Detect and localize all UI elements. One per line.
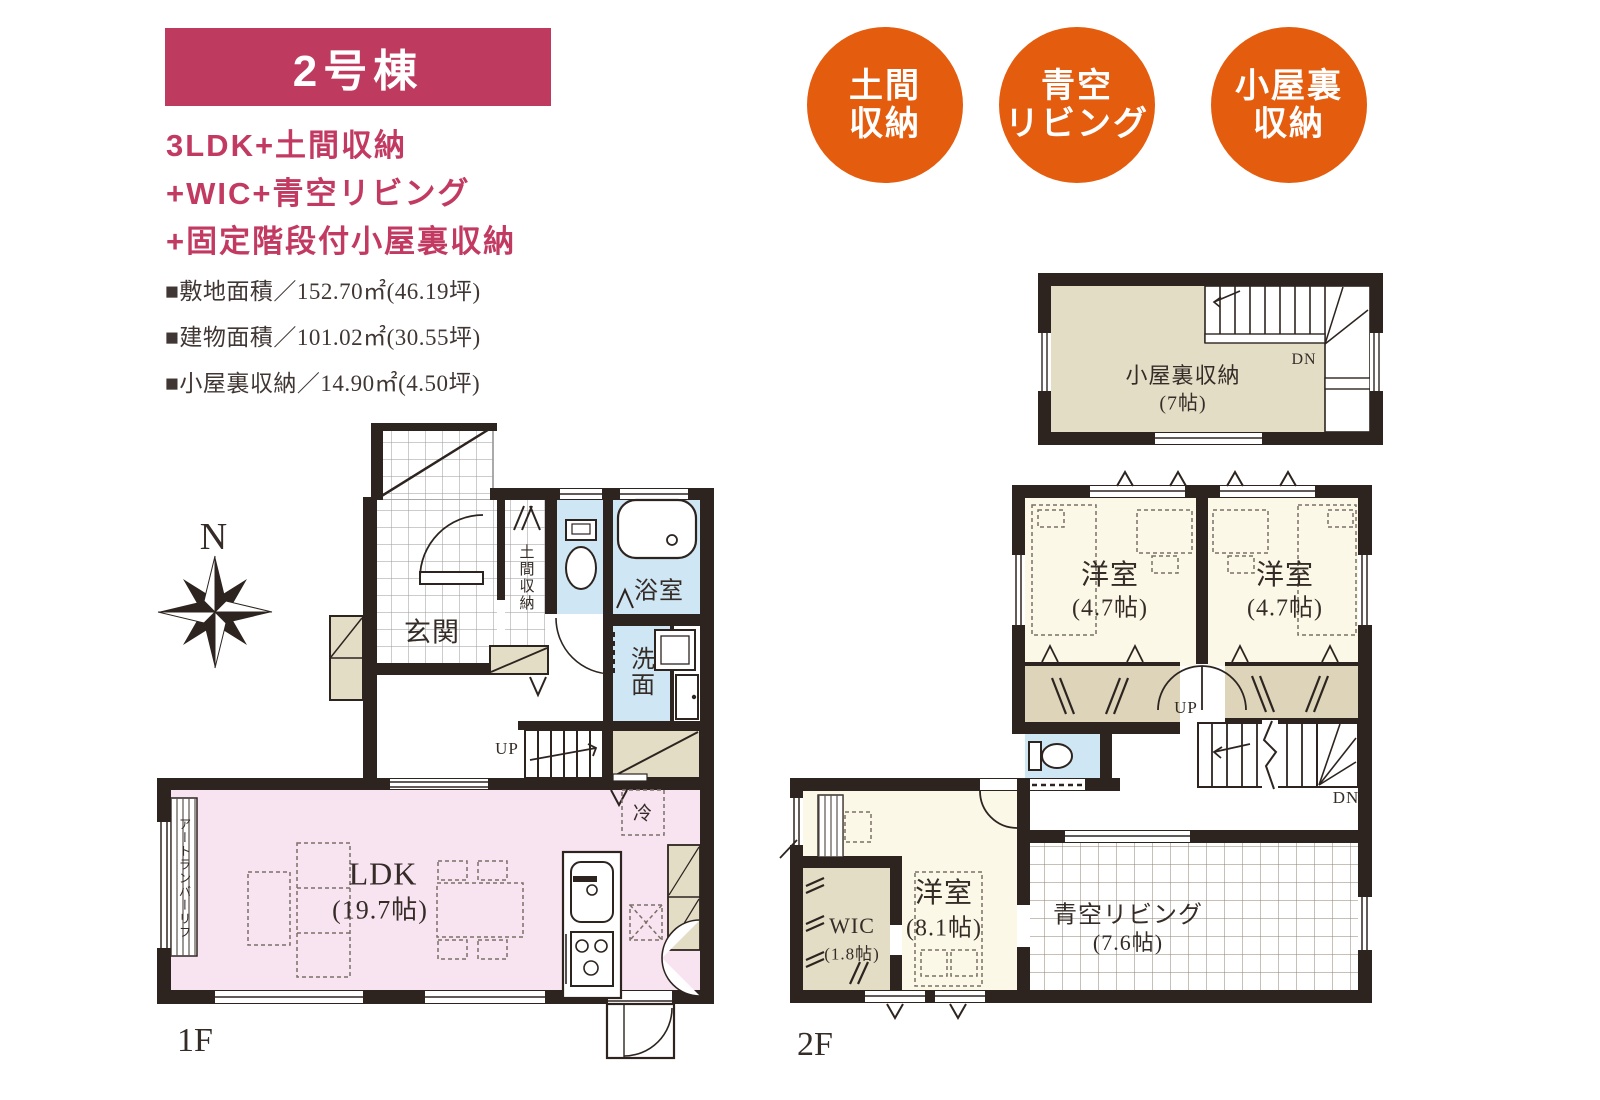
- stairs-2f: [1198, 720, 1358, 790]
- badge-text: 収納: [849, 105, 921, 143]
- exterior-step: [607, 1004, 674, 1058]
- bedroom2-size-label: (4.7帖): [1247, 588, 1323, 623]
- toilet-icon: [566, 520, 596, 589]
- spec-attic-area: ■小屋裏収納／14.90㎡(4.50坪): [165, 364, 480, 398]
- bedroom1-size-label: (4.7帖): [1072, 588, 1148, 623]
- understair-storage: [612, 730, 700, 781]
- compass-rose-icon: [158, 556, 272, 668]
- bedroom3-label: 洋室: [915, 871, 973, 911]
- badge-text: 小屋裏: [1235, 67, 1343, 105]
- floorplan-2f: [770, 460, 1400, 1060]
- wic-size-label: (1.8帖): [824, 940, 880, 965]
- ldk-size-label: (19.7帖): [332, 890, 428, 927]
- spec-building-area: ■建物面積／101.02㎡(30.55坪): [165, 318, 481, 352]
- badge-text: 土間: [849, 67, 921, 105]
- floor2-tag: 2F: [797, 1026, 833, 1064]
- badge-attic-storage: 小屋裏 収納: [1211, 27, 1367, 183]
- feature-line-2: +WIC+青空リビング: [166, 168, 470, 213]
- spec-site-area: ■敷地面積／152.70㎡(46.19坪): [165, 272, 481, 306]
- feature-line-3: +固定階段付小屋裏収納: [166, 216, 516, 261]
- stove-icon: [566, 932, 613, 986]
- unit-title-box: 2号棟: [165, 28, 551, 106]
- kitchen-island: [563, 852, 621, 998]
- floorplan-sheet: 2号棟 3LDK+土間収納 +WIC+青空リビング +固定階段付小屋裏収納 ■敷…: [0, 0, 1600, 1100]
- badge-text: 収納: [1253, 105, 1325, 143]
- stairs-1f: [525, 730, 603, 778]
- unit-title: 2号棟: [293, 35, 423, 99]
- stairs-up-label-2f: UP: [1174, 698, 1198, 718]
- feature-line-1: 3LDK+土間収納: [166, 120, 407, 165]
- ldk-label: LDK: [349, 856, 418, 893]
- stairs-dn-label-attic: DN: [1291, 351, 1316, 369]
- stairs-dn-label-2f: DN: [1333, 788, 1360, 808]
- badge-doma-storage: 土間 収納: [807, 27, 963, 183]
- floor1-tag: 1F: [177, 1022, 213, 1060]
- wash-label: 洗面: [623, 646, 658, 698]
- bedroom3-size-label: (8.1帖): [906, 908, 982, 943]
- doma-storage-label: 土間収納: [516, 544, 537, 612]
- badge-sky-living: 青空 リビング: [999, 27, 1155, 183]
- attic-label: 小屋裏収納: [1125, 358, 1240, 390]
- bath-label: 浴室: [634, 571, 684, 606]
- sky-living-size-label: (7.6帖): [1093, 925, 1163, 957]
- badge-text: リビング: [1005, 105, 1149, 143]
- stairs-up-label-1f: UP: [495, 739, 519, 759]
- compass-north-label: N: [200, 515, 228, 559]
- genkan-label: 玄関: [404, 611, 460, 650]
- floorplan-1f: [140, 410, 740, 1070]
- toilet-icon-2f: [1029, 742, 1072, 770]
- fridge-label: 冷: [633, 799, 653, 826]
- attic-size-label: (7帖): [1159, 387, 1206, 416]
- badge-text: 青空: [1041, 67, 1113, 105]
- sink-icon: [571, 862, 613, 922]
- wic-label: WIC: [829, 913, 875, 939]
- deck-label: アートランバーリフ: [175, 817, 194, 939]
- closet1: [1025, 666, 1180, 722]
- closet2: [1225, 666, 1358, 718]
- louver-strip-2f: [818, 795, 843, 857]
